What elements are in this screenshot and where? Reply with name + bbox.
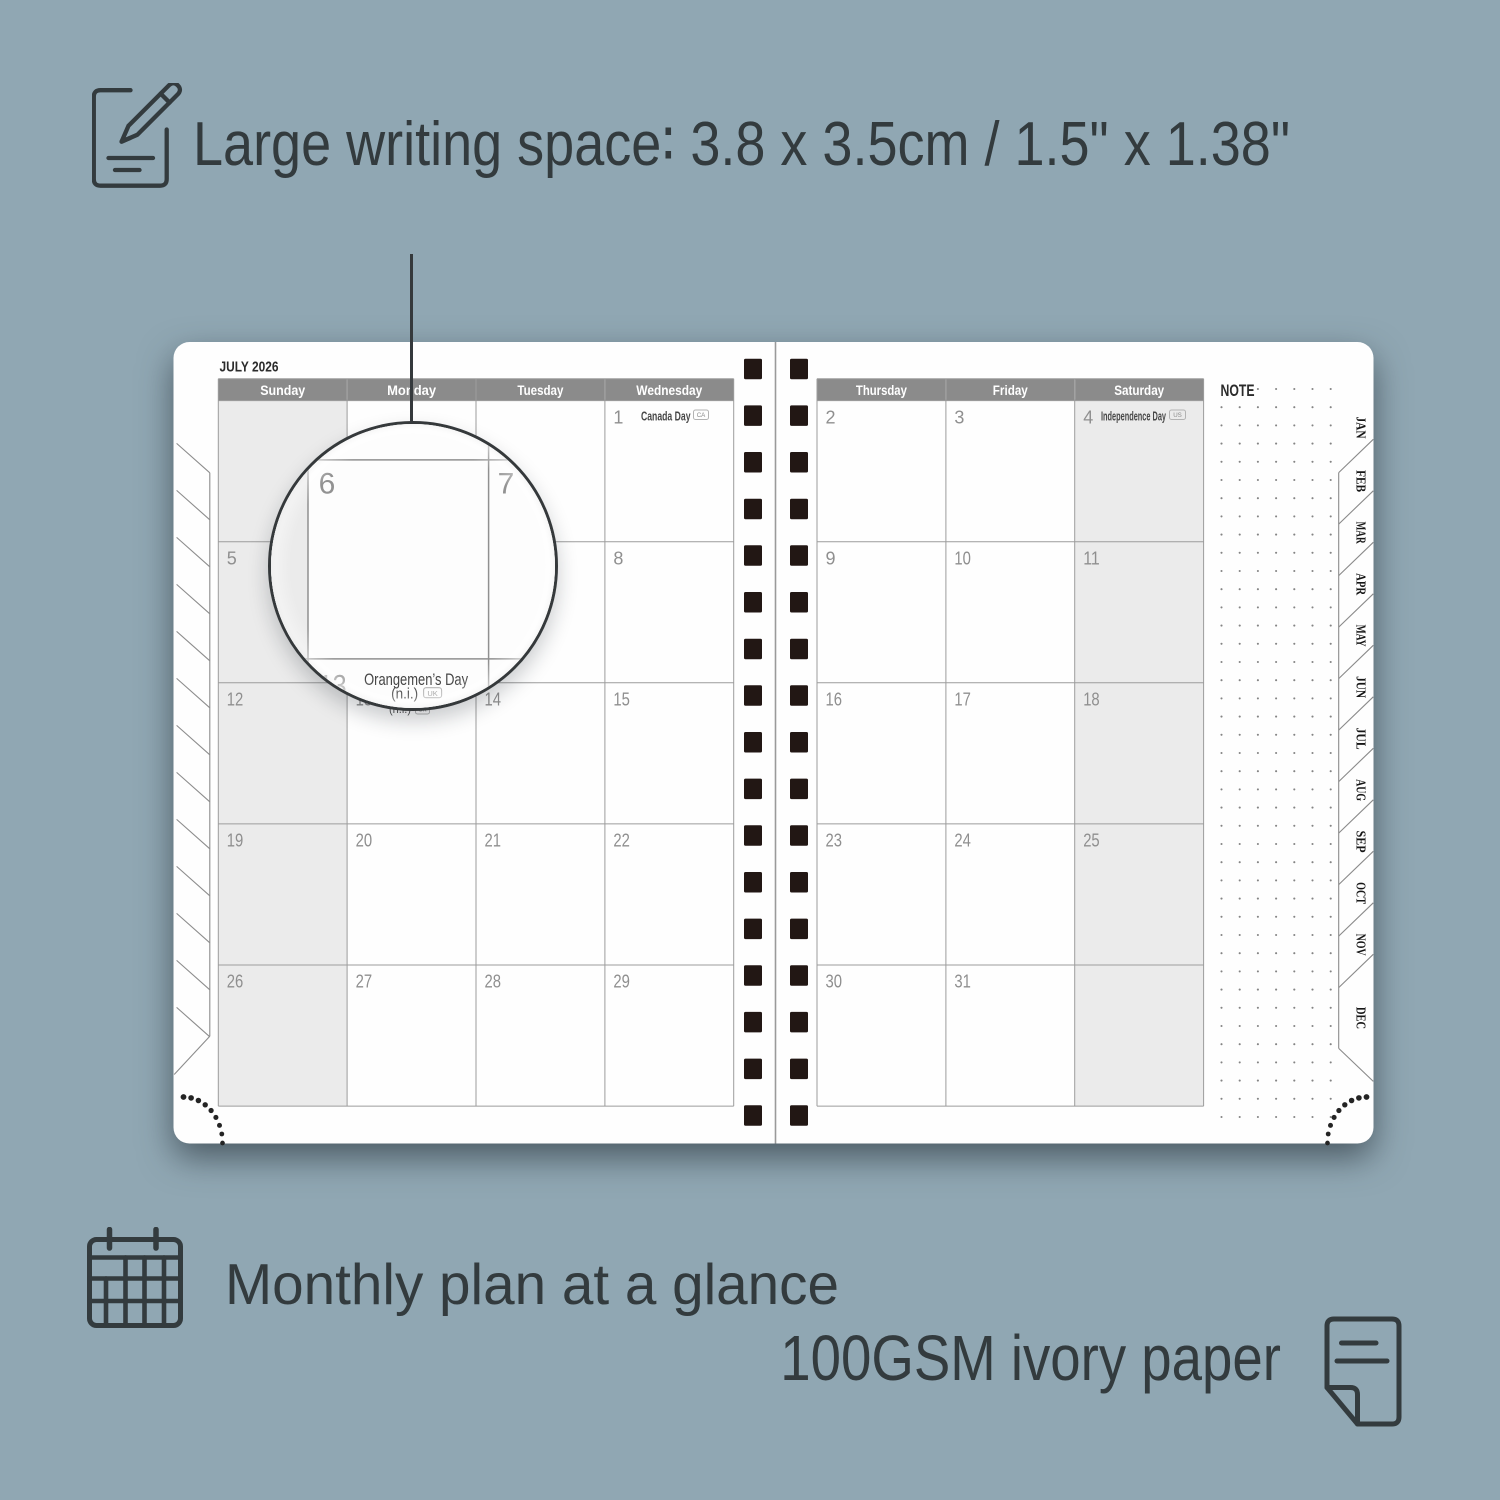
- svg-text:Canada Day: Canada Day: [641, 409, 691, 424]
- svg-text:Thursday: Thursday: [856, 383, 907, 399]
- svg-text:28: 28: [485, 972, 502, 992]
- svg-text:11: 11: [1083, 548, 1100, 568]
- svg-text:21: 21: [485, 831, 502, 851]
- svg-text:10: 10: [954, 548, 971, 568]
- svg-text:27: 27: [356, 972, 373, 992]
- svg-text:14: 14: [485, 690, 502, 710]
- svg-text:FEB: FEB: [1353, 470, 1368, 492]
- svg-text:15: 15: [613, 690, 630, 710]
- svg-text:24: 24: [954, 831, 971, 851]
- svg-text:5: 5: [227, 548, 237, 568]
- svg-text:SEP: SEP: [1353, 831, 1368, 853]
- svg-text:2: 2: [826, 407, 836, 427]
- svg-text:26: 26: [227, 972, 244, 992]
- svg-text:29: 29: [613, 972, 630, 992]
- svg-text:Friday: Friday: [993, 383, 1028, 399]
- svg-text:Tuesday: Tuesday: [517, 383, 563, 399]
- svg-text:Wednesday: Wednesday: [636, 383, 702, 399]
- svg-text:18: 18: [1083, 690, 1100, 710]
- svg-text:US: US: [1173, 412, 1182, 419]
- svg-text:APR: APR: [1353, 573, 1368, 595]
- svg-text:NOV: NOV: [1353, 934, 1368, 956]
- svg-text:JULY 2026: JULY 2026: [220, 360, 279, 376]
- svg-text:12: 12: [227, 690, 244, 710]
- svg-text:JUL: JUL: [1353, 728, 1368, 750]
- svg-text:16: 16: [826, 690, 843, 710]
- svg-text:OCT: OCT: [1353, 882, 1368, 904]
- svg-text:Sunday: Sunday: [260, 383, 305, 399]
- svg-text:DEC: DEC: [1353, 1007, 1368, 1029]
- svg-text:AUG: AUG: [1353, 779, 1368, 801]
- svg-text:CA: CA: [697, 412, 706, 419]
- svg-text:20: 20: [356, 831, 373, 851]
- svg-text:Saturday: Saturday: [1114, 383, 1164, 399]
- svg-text:JAN: JAN: [1353, 417, 1368, 439]
- svg-text:JUN: JUN: [1353, 676, 1368, 698]
- svg-text:25: 25: [1083, 831, 1100, 851]
- svg-text:3: 3: [954, 407, 964, 427]
- svg-text:9: 9: [826, 548, 836, 568]
- svg-text:31: 31: [954, 972, 971, 992]
- svg-text:Independence Day: Independence Day: [1101, 409, 1166, 424]
- svg-text:8: 8: [613, 548, 623, 568]
- svg-text:22: 22: [613, 831, 630, 851]
- svg-text:23: 23: [826, 831, 843, 851]
- svg-text:1: 1: [613, 407, 623, 427]
- svg-text:NOTE: NOTE: [1221, 382, 1255, 400]
- svg-text:MAY: MAY: [1353, 625, 1368, 647]
- svg-text:19: 19: [227, 831, 244, 851]
- svg-text:MAR: MAR: [1353, 522, 1368, 544]
- svg-text:30: 30: [826, 972, 843, 992]
- svg-text:17: 17: [954, 690, 971, 710]
- svg-text:4: 4: [1083, 407, 1093, 427]
